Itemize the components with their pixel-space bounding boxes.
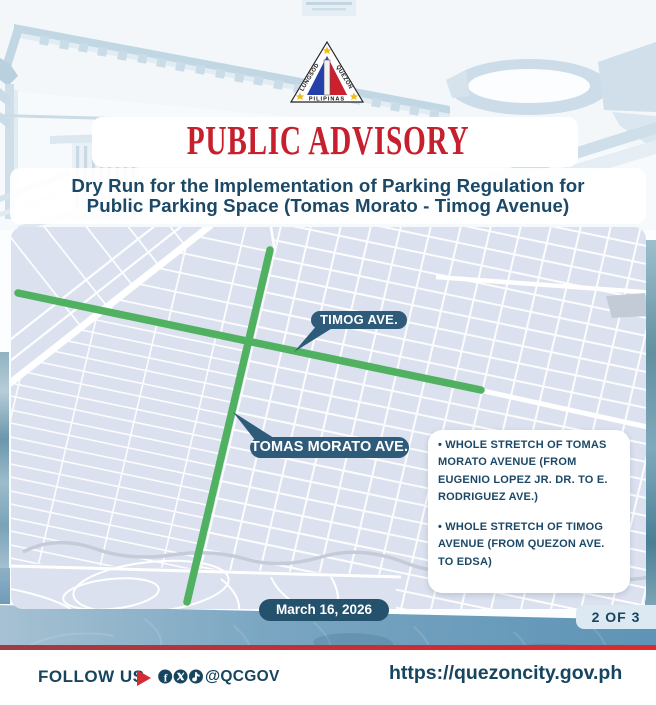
- svg-text:f: f: [164, 672, 168, 684]
- svg-text:PILIPINAS: PILIPINAS: [309, 97, 345, 103]
